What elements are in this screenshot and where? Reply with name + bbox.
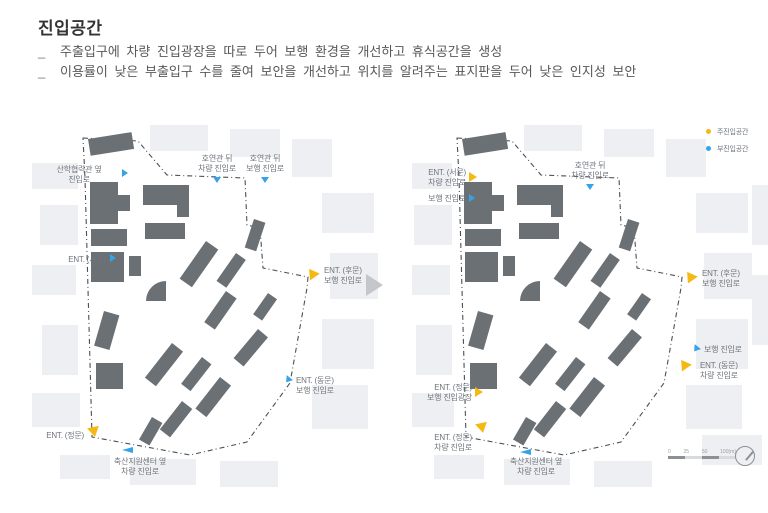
bullet-text: 이용률이 낮은 부출입구 수를 줄여 보안을 개선하고 위치를 알려주는 표지판… xyxy=(60,64,636,79)
entry-label-back-gate: ENT. (후문) 보행 진입로 xyxy=(702,269,764,289)
entry-label-hoyeon-vehicle: 호연관 뒤 차량 진입로 xyxy=(560,161,620,181)
sub-entry-arrow-icon xyxy=(586,184,594,190)
scale-tick: 25 xyxy=(684,449,690,455)
sub-entry-arrow-icon xyxy=(110,254,116,262)
entry-label-chuksan: 축산지원센터 옆 차량 진입로 xyxy=(488,457,584,477)
scale-tick: 100(m) xyxy=(720,449,736,455)
entry-label-main-gate-plaza: ENT. (정문) 보행 진입광장 xyxy=(412,383,472,403)
entry-label-west-gate-vehicle: ENT. (서문) 차량 진입로 xyxy=(412,168,466,188)
entry-label-west-gate: ENT. (서문) xyxy=(38,255,106,265)
entry-label-main-gate-vehicle: ENT. (정문) 차량 진입로 xyxy=(412,433,472,453)
bullet-line: _주출입구에 차량 진입광장을 따로 두어 보행 환경을 개선하고 휴식공간을 … xyxy=(38,42,738,62)
sub-entry-arrow-icon xyxy=(213,177,221,183)
map-before: 산학협력관 옆 진입로 호연관 뒤 차량 진입로 호연관 뒤 보행 진입로 EN… xyxy=(30,125,390,490)
entry-label-east-gate: ENT. (동문) 보행 진입로 xyxy=(296,376,358,396)
scale-bar-labels: 0 25 50 100(m) xyxy=(668,449,736,455)
scale-bar: 0 25 50 100(m) xyxy=(668,449,736,459)
sub-entry-arrow-icon xyxy=(122,169,128,177)
bullet-marker: _ xyxy=(38,62,45,82)
sub-entry-arrow-icon xyxy=(261,177,269,183)
north-arrow-icon xyxy=(735,446,755,466)
main-entry-arrow-icon xyxy=(475,387,483,397)
entry-label-chuksan: 축산지원센터 옆 차량 진입로 xyxy=(92,457,188,477)
sub-entry-arrow-icon xyxy=(520,449,531,455)
main-entry-arrow-icon xyxy=(469,172,477,182)
page-title: 진입공간 xyxy=(38,14,103,39)
entry-label-hoyeon-ped: 호연관 뒤 보행 진입로 xyxy=(236,154,294,174)
scale-tick: 50 xyxy=(702,449,708,455)
slide: 진입공간 _주출입구에 차량 진입광장을 따로 두어 보행 환경을 개선하고 휴… xyxy=(0,0,768,513)
entry-label-sanhak: 산학협력관 옆 진입로 xyxy=(38,165,120,185)
description-list: _주출입구에 차량 진입광장을 따로 두어 보행 환경을 개선하고 휴식공간을 … xyxy=(38,42,738,82)
entry-label-ped-road: 보행 진입로 xyxy=(704,345,762,355)
map-after: ENT. (서문) 차량 진입로 보행 진입로 호연관 뒤 차량 진입로 ENT… xyxy=(412,125,768,490)
bullet-text: 주출입구에 차량 진입광장을 따로 두어 보행 환경을 개선하고 휴식공간을 생… xyxy=(60,44,502,59)
sub-entry-arrow-icon xyxy=(122,447,133,453)
scale-tick: 0 xyxy=(668,449,671,455)
bullet-marker: _ xyxy=(38,42,45,62)
sub-entry-arrow-icon xyxy=(469,194,475,202)
entry-label-west-gate-ped: 보행 진입로 xyxy=(412,194,466,204)
transition-arrow-icon xyxy=(366,274,383,296)
bullet-line: _이용률이 낮은 부출입구 수를 줄여 보안을 개선하고 위치를 알려주는 표지… xyxy=(38,62,738,82)
scale-bar-segments xyxy=(668,456,736,459)
entry-label-main-gate: ENT. (정문) xyxy=(32,431,84,441)
entry-label-east-gate-vehicle: ENT. (동문) 차량 진입로 xyxy=(700,361,762,381)
